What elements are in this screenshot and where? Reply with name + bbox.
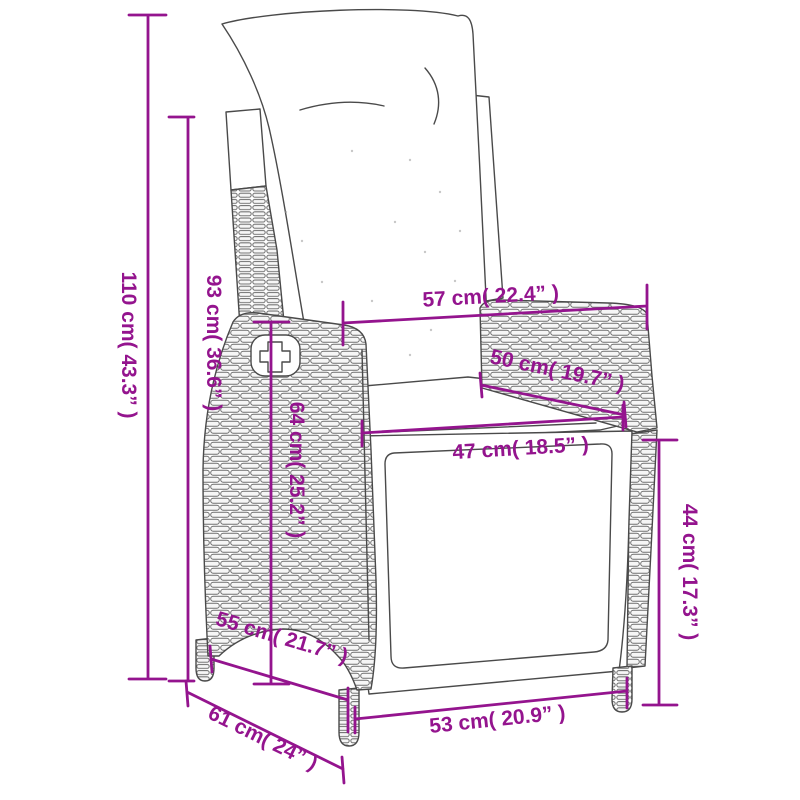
front-right-leg xyxy=(612,666,632,712)
back-post-woven xyxy=(231,186,284,327)
chair-dimension-diagram: 110 cm( 43.3” ) 93 cm( 36.6” ) 57 cm( 22… xyxy=(0,0,800,800)
back-post-top xyxy=(226,109,266,190)
dimension-label: 64 cm( 25.2” ) xyxy=(285,402,308,539)
product-image: 110 cm( 43.3” ) 93 cm( 36.6” ) 57 cm( 22… xyxy=(0,0,800,800)
dimension-total-height: 110 cm( 43.3” ) xyxy=(117,15,166,679)
dimension-label: 110 cm( 43.3” ) xyxy=(117,271,140,418)
dimension-label: 93 cm( 36.6” ) xyxy=(202,275,225,412)
dimension-label: 61 cm( 24” ) xyxy=(204,701,321,774)
dimension-label: 53 cm( 20.9” ) xyxy=(428,701,566,738)
dimension-line xyxy=(169,117,194,681)
dimension-label: 44 cm( 17.3” ) xyxy=(678,504,701,641)
front-panel xyxy=(357,431,632,694)
dimension-base-depth: 61 cm( 24” ) xyxy=(186,681,344,783)
